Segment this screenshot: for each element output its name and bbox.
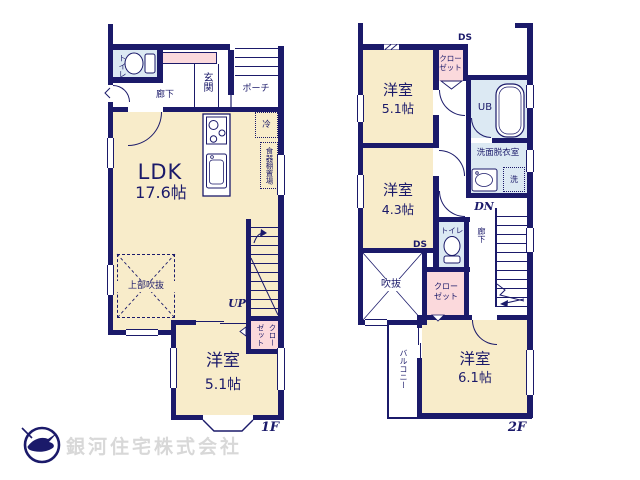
porch-step (235, 57, 278, 58)
window (357, 95, 364, 122)
stairs-wall-2f (495, 208, 497, 307)
bedroom43-name: 洋室 (369, 181, 427, 199)
porch-step (235, 48, 278, 49)
wall (108, 24, 113, 85)
wall (171, 415, 203, 420)
bedroom51-2f-area: 5.1帖 (369, 101, 427, 116)
company-name: 銀河住宅株式会社 (66, 432, 242, 459)
fridge-label: 冷 (255, 120, 278, 130)
wall (422, 253, 427, 315)
window (107, 265, 114, 295)
wall (171, 320, 196, 325)
door-arc-bedroom43 (439, 150, 465, 176)
toilet-label-1f: トイレ (117, 52, 128, 80)
porch-label: ポーチ (234, 84, 278, 95)
washer-label: 洗 (503, 175, 525, 185)
toilet-label-2f: トイレ (439, 226, 465, 235)
up-label: UP (226, 297, 248, 310)
porch-step (235, 66, 278, 67)
wall (492, 138, 527, 143)
window (126, 329, 158, 336)
window (526, 228, 534, 252)
wall (417, 315, 472, 320)
stairs-1f (251, 219, 278, 316)
cupboard-label: 食器棚置場 (261, 145, 277, 187)
window (277, 155, 285, 195)
floorplan-page: トイレ 廊下 玄関 ポーチ LDK 17.6帖 冷 食器棚置場 上部吹抜 UP … (0, 0, 640, 480)
window (107, 138, 114, 168)
entrance-label: 玄関 (200, 66, 213, 98)
bay-window-icon (203, 420, 253, 431)
dn-label: DN (472, 200, 496, 213)
window (526, 85, 534, 108)
wall-outer-left-2f (358, 23, 363, 325)
wall (497, 315, 532, 320)
logo-beak-line (22, 428, 32, 438)
wall (466, 75, 471, 198)
closet-mid-label: クローゼット (433, 282, 459, 301)
balcony-wall (387, 325, 389, 418)
bedroom51-1f-area: 5.1帖 (188, 377, 258, 394)
bedroom61-area: 6.1帖 (433, 371, 517, 387)
window (357, 175, 364, 208)
closet-label-1f: クローゼット (252, 322, 278, 349)
door-arc-corridor (113, 85, 130, 102)
window (526, 150, 534, 172)
stairs-2f (497, 208, 527, 307)
porch-step (235, 75, 278, 76)
wall (466, 193, 532, 198)
bedroom51-2f-name: 洋室 (369, 81, 427, 99)
washroom-label: 洗面脱衣室 (469, 148, 527, 158)
floor-label-2f: 2F (502, 420, 532, 436)
balcony-sliding-door (419, 328, 421, 358)
upper-void-label: 上部吹抜 (117, 281, 175, 292)
shoe-cabinet (162, 52, 217, 64)
balcony-label: バルコニー (397, 336, 409, 402)
wall (417, 358, 422, 418)
window (277, 348, 285, 390)
ldk-name-label: LDK (130, 160, 190, 185)
corridor-label-2f: 廊下 (476, 224, 487, 246)
entrance-step-line (218, 64, 219, 107)
wall (246, 321, 251, 349)
wall (463, 75, 533, 80)
wall (108, 44, 230, 50)
wall (427, 267, 470, 272)
bird-icon (28, 433, 57, 452)
wall (417, 320, 422, 328)
door-marker (105, 88, 110, 98)
ldk-area-label: 17.6帖 (125, 183, 197, 202)
window (365, 319, 387, 326)
closet-top-label: クローゼット (438, 54, 463, 72)
door-arc-toilet-2f (439, 191, 465, 217)
door-arc-bedroom51-2f (439, 90, 465, 116)
window (170, 348, 177, 388)
logo-circle (25, 428, 59, 462)
wall (358, 143, 439, 148)
bedroom51-1f-name: 洋室 (188, 351, 258, 371)
ds-mid-label: DS (410, 240, 430, 251)
wall (163, 107, 283, 112)
wall (358, 44, 438, 50)
balcony-wall (387, 417, 419, 419)
bedroom43-area: 4.3帖 (369, 202, 427, 217)
wall (433, 176, 439, 217)
wall (246, 316, 283, 321)
bedroom61-name: 洋室 (435, 350, 515, 369)
floor-label-1f: 1F (255, 420, 285, 436)
window (526, 350, 534, 395)
wall (417, 413, 532, 419)
ds-top-label: DS (455, 33, 475, 44)
entrance-step-line (194, 64, 195, 107)
ub-label: UB (472, 102, 498, 114)
company-logo (16, 420, 68, 472)
closet-door-marker (441, 81, 462, 89)
void-label: 吹抜 (371, 279, 411, 291)
corridor-label-1f: 廊下 (150, 90, 180, 101)
